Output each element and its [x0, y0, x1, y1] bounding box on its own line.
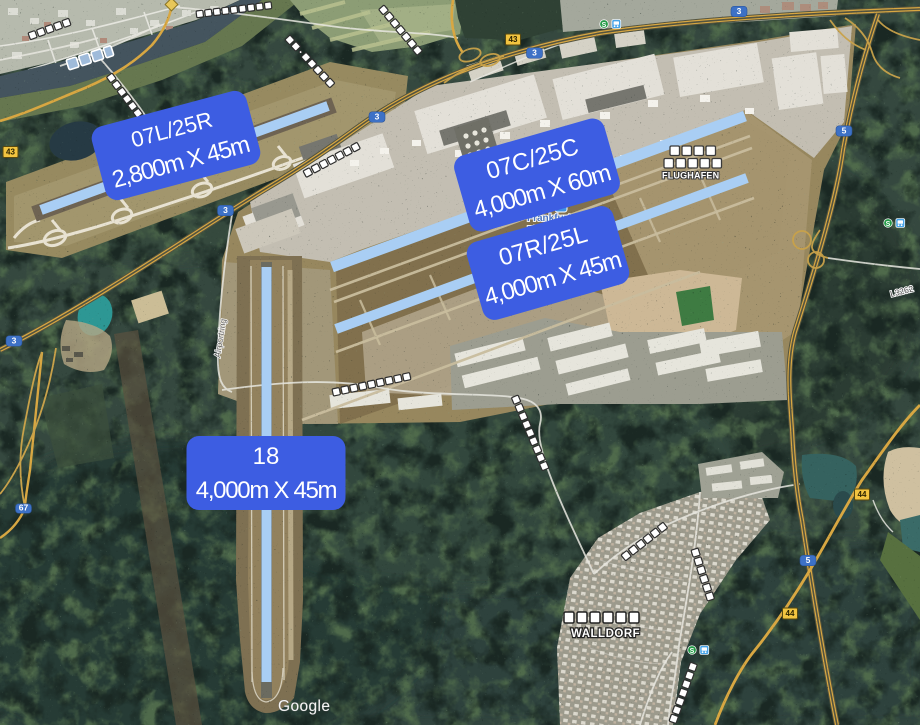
svg-text:3: 3 — [375, 112, 380, 122]
svg-text:44: 44 — [858, 490, 867, 499]
svg-text:44: 44 — [786, 609, 795, 618]
svg-text:FLUGHAFEN: FLUGHAFEN — [662, 171, 719, 181]
svg-text:3: 3 — [12, 336, 17, 346]
svg-text:WALLDORF: WALLDORF — [571, 628, 640, 640]
svg-text:67: 67 — [19, 503, 29, 513]
svg-text:S: S — [886, 221, 891, 228]
svg-text:43: 43 — [6, 148, 15, 157]
svg-text:S: S — [602, 22, 607, 29]
svg-text:5: 5 — [806, 555, 811, 565]
svg-text:5: 5 — [842, 126, 847, 136]
svg-text:4,000m X 45m: 4,000m X 45m — [196, 477, 337, 504]
svg-text:3: 3 — [223, 205, 228, 215]
svg-text:3: 3 — [737, 6, 742, 16]
svg-text:S: S — [690, 648, 695, 655]
svg-text:3: 3 — [532, 48, 537, 58]
svg-text:43: 43 — [509, 35, 518, 44]
svg-text:18: 18 — [253, 443, 280, 470]
svg-text:Google: Google — [278, 698, 330, 715]
